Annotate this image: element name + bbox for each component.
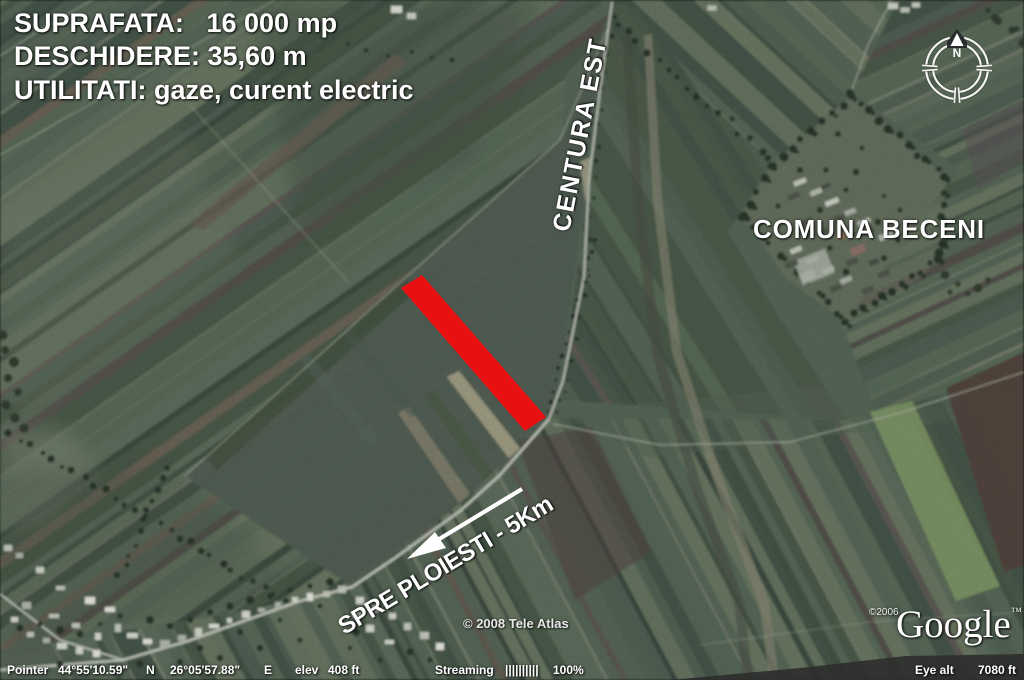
svg-text:N: N <box>953 46 962 60</box>
